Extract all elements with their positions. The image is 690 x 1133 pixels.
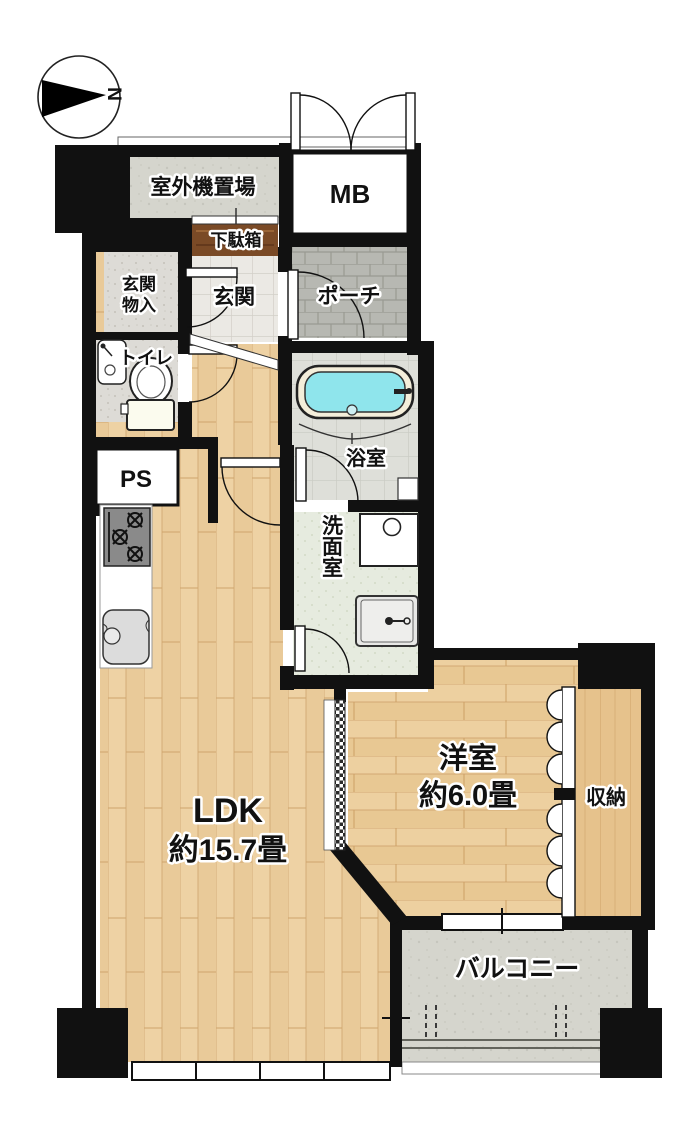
stove-icon xyxy=(104,508,150,566)
compass-north-label: N xyxy=(103,87,124,101)
sliding-door xyxy=(324,700,345,850)
western-room-label-2: 約6.0畳 xyxy=(419,778,517,812)
kitchen-counter xyxy=(100,505,152,668)
vanity-sink-icon xyxy=(356,596,418,646)
entrance-storage-label-1: 玄関 xyxy=(122,274,156,294)
western-room-label-1: 洋室 xyxy=(439,741,497,775)
entrance-storage-floor xyxy=(104,252,178,338)
storage-label: 収納 xyxy=(586,785,626,809)
floor-plan: N 室外機置場 MB 下駄箱 玄関 物入 玄関 ポーチ トイレ 浴室 PS 洗面… xyxy=(0,0,690,1133)
meter-box-label: MB xyxy=(330,179,370,209)
outdoor-unit-label: 室外機置場 xyxy=(151,175,256,199)
bath-counter xyxy=(398,478,418,500)
shoe-cabinet-label: 下駄箱 xyxy=(211,230,262,250)
porch-label: ポーチ xyxy=(318,284,381,308)
pipe-space-label: PS xyxy=(120,466,152,493)
bathroom-label: 浴室 xyxy=(346,446,386,470)
washroom-label: 洗面室 xyxy=(320,515,344,578)
toilet-label: トイレ xyxy=(119,348,173,368)
washer-icon xyxy=(360,514,418,566)
ldk-label-2: 約15.7畳 xyxy=(169,834,287,867)
balcony-label: バルコニー xyxy=(455,955,580,983)
ldk-label-1: LDK xyxy=(193,792,263,830)
compass: N xyxy=(38,56,124,138)
entrance-storage-label-2: 物入 xyxy=(122,295,156,315)
balcony-floor xyxy=(402,928,632,1064)
kitchen-sink-icon xyxy=(103,610,149,664)
entrance-label: 玄関 xyxy=(213,285,255,309)
